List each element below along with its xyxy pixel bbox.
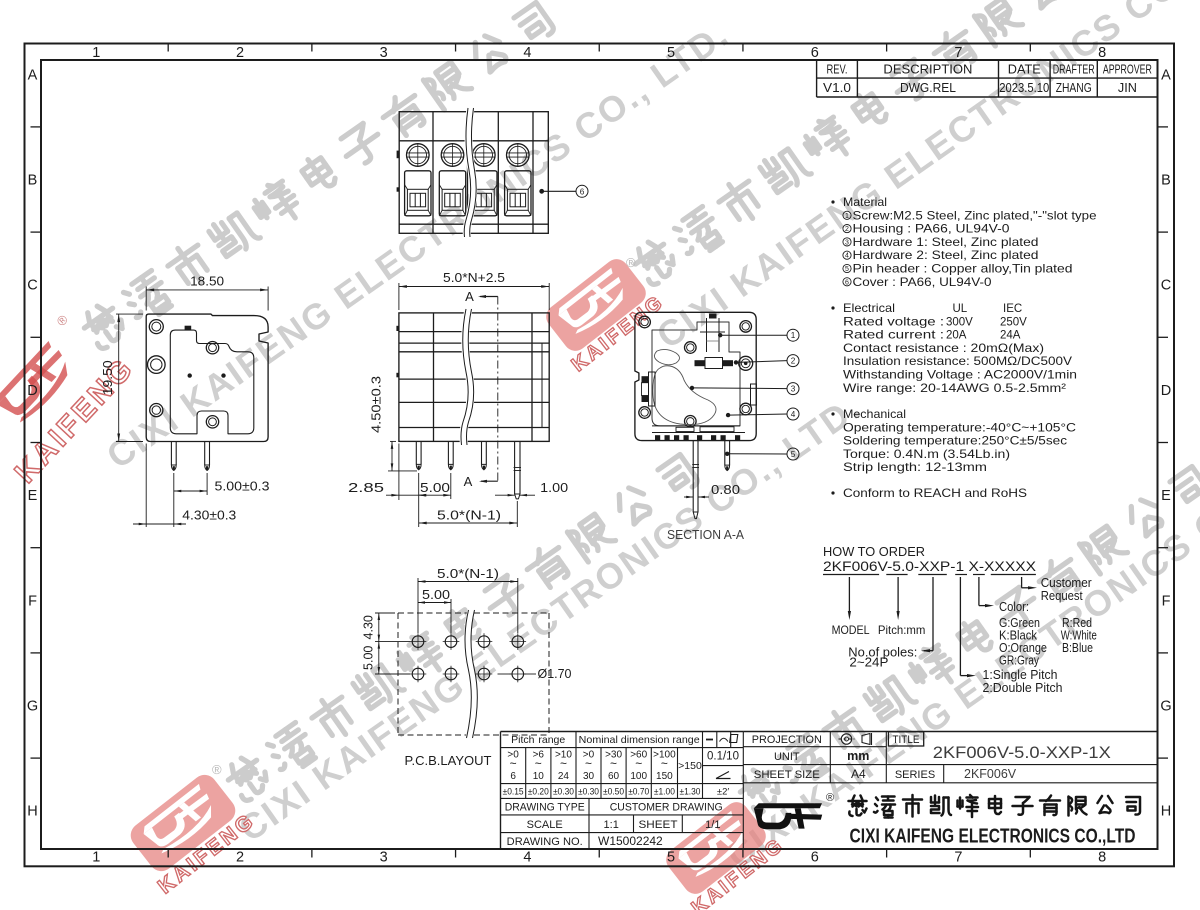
svg-text:~: ~ xyxy=(661,757,668,771)
svg-text:G: G xyxy=(1160,699,1171,715)
svg-text:P.C.B.LAYOUT: P.C.B.LAYOUT xyxy=(405,753,492,768)
svg-text:~: ~ xyxy=(635,757,642,771)
svg-text:2: 2 xyxy=(236,45,244,61)
svg-text:~: ~ xyxy=(610,757,617,771)
svg-text:Torque: 0.4N.m (3.54Lb.in): Torque: 0.4N.m (3.54Lb.in) xyxy=(843,447,1010,461)
svg-text:IEC: IEC xyxy=(1003,303,1022,315)
svg-text:H: H xyxy=(1161,804,1171,820)
svg-text:8: 8 xyxy=(1098,850,1106,866)
svg-text:8: 8 xyxy=(1098,45,1106,61)
svg-text:UNIT: UNIT xyxy=(774,751,800,763)
svg-text:A: A xyxy=(465,289,474,304)
svg-text:Operating temperature:-40°C~+1: Operating temperature:-40°C~+105°C xyxy=(843,420,1076,434)
svg-text:18.50: 18.50 xyxy=(190,275,224,289)
svg-text:±0.50: ±0.50 xyxy=(603,787,624,798)
svg-text:5.0*(N-1): 5.0*(N-1) xyxy=(437,509,501,523)
svg-text:Request: Request xyxy=(1041,589,1083,603)
svg-text:ZHANG: ZHANG xyxy=(1056,80,1092,95)
svg-text:Customer: Customer xyxy=(1041,576,1092,590)
svg-text:DESCRIPTION: DESCRIPTION xyxy=(883,63,972,77)
svg-text:4: 4 xyxy=(791,410,796,419)
svg-text:>150: >150 xyxy=(678,760,702,772)
svg-text:±1.00: ±1.00 xyxy=(654,787,675,798)
svg-text:Strip length: 12-13mm: Strip length: 12-13mm xyxy=(843,460,987,474)
svg-text:±1.30: ±1.30 xyxy=(680,787,701,798)
svg-text:SCALE: SCALE xyxy=(527,819,563,831)
svg-text:5: 5 xyxy=(667,850,675,866)
svg-text:1: 1 xyxy=(845,213,849,220)
svg-text:0.80: 0.80 xyxy=(711,483,740,497)
svg-text:SHEET SIZE: SHEET SIZE xyxy=(754,769,820,781)
svg-text:2KF006V-5.0-XXP-1X: 2KF006V-5.0-XXP-1X xyxy=(933,744,1111,762)
svg-text:Soldering temperature:250°C±5/: Soldering temperature:250°C±5/5sec xyxy=(843,434,1067,448)
svg-text:JIN: JIN xyxy=(1118,80,1137,95)
svg-text:DRAWING NO.: DRAWING NO. xyxy=(507,836,583,848)
svg-text:Color:: Color: xyxy=(999,600,1029,614)
svg-text:Pin header : Copper alloy,Tin: Pin header : Copper alloy,Tin plated xyxy=(853,262,1073,276)
svg-text:2: 2 xyxy=(845,226,849,233)
svg-text:~: ~ xyxy=(510,757,517,771)
svg-text:Housing : PA66, UL94V-0: Housing : PA66, UL94V-0 xyxy=(853,222,1010,236)
svg-text:Conform to REACH and RoHS: Conform to REACH and RoHS xyxy=(843,486,1027,500)
svg-text:2: 2 xyxy=(236,850,244,866)
svg-text:Cover : PA66, UL94V-0: Cover : PA66, UL94V-0 xyxy=(853,275,992,289)
svg-text:E: E xyxy=(28,488,38,504)
svg-text:Hardware 2: Steel, Zinc plated: Hardware 2: Steel, Zinc plated xyxy=(853,248,1039,262)
svg-text:4: 4 xyxy=(523,850,531,866)
svg-text:24A: 24A xyxy=(1000,330,1021,342)
svg-text:5.00: 5.00 xyxy=(362,646,376,670)
svg-text:A: A xyxy=(28,67,38,83)
svg-text:±2′: ±2′ xyxy=(717,787,729,798)
svg-text:2KF006V: 2KF006V xyxy=(964,767,1017,781)
svg-text:5.00±0.3: 5.00±0.3 xyxy=(215,480,270,494)
svg-text:2023.5.10: 2023.5.10 xyxy=(999,80,1049,95)
svg-text:Nominal dimension range: Nominal dimension range xyxy=(579,734,700,746)
svg-text:mm: mm xyxy=(847,749,869,763)
svg-text:1: 1 xyxy=(92,850,100,866)
svg-text:®: ® xyxy=(626,255,636,270)
svg-text:10: 10 xyxy=(533,771,545,782)
svg-text:6: 6 xyxy=(580,187,585,196)
svg-text:Wire range: 20-14AWG 0.5-2.5mm: Wire range: 20-14AWG 0.5-2.5mm² xyxy=(843,381,1066,395)
svg-text:B:Blue: B:Blue xyxy=(1062,641,1093,655)
svg-text:Pitch range: Pitch range xyxy=(511,734,565,746)
svg-text:6: 6 xyxy=(845,279,849,286)
svg-text:4.50±0.3: 4.50±0.3 xyxy=(370,376,384,433)
svg-text:3: 3 xyxy=(380,45,388,61)
svg-text:SERIES: SERIES xyxy=(895,769,935,781)
svg-text:Mechanical: Mechanical xyxy=(843,407,906,421)
svg-text:F: F xyxy=(1162,593,1171,609)
svg-text:~: ~ xyxy=(535,757,542,771)
svg-text:6: 6 xyxy=(510,771,516,782)
svg-text:APPROVER: APPROVER xyxy=(1103,63,1152,77)
svg-text:7: 7 xyxy=(954,45,962,61)
svg-text:1.00: 1.00 xyxy=(540,481,568,495)
svg-text:TITLE: TITLE xyxy=(893,734,920,746)
svg-text:Electrical: Electrical xyxy=(843,301,895,315)
svg-text:E: E xyxy=(1161,488,1171,504)
svg-text:5.0*N+2.5: 5.0*N+2.5 xyxy=(443,271,505,285)
svg-text:Material: Material xyxy=(843,195,887,209)
svg-text:±0.70: ±0.70 xyxy=(628,787,649,798)
svg-text:F: F xyxy=(28,593,37,609)
svg-text:3: 3 xyxy=(845,239,849,246)
svg-text:300V: 300V xyxy=(946,316,973,328)
svg-text:±0.30: ±0.30 xyxy=(553,787,574,798)
svg-text:3: 3 xyxy=(380,850,388,866)
svg-text:5: 5 xyxy=(667,45,675,61)
svg-text:H: H xyxy=(27,804,37,820)
svg-text:2.85: 2.85 xyxy=(348,481,384,495)
svg-text:Pitch:mm: Pitch:mm xyxy=(878,623,926,637)
svg-text:100: 100 xyxy=(630,771,647,782)
svg-text:DWG.REL: DWG.REL xyxy=(900,80,956,95)
svg-text:PROJECTION: PROJECTION xyxy=(752,734,822,746)
svg-text:SECTION A-A: SECTION A-A xyxy=(667,528,745,542)
svg-text:DATE: DATE xyxy=(1008,63,1041,77)
svg-text:5: 5 xyxy=(845,266,849,273)
svg-text:Rated current :: Rated current : xyxy=(843,328,944,342)
svg-text:4: 4 xyxy=(523,45,531,61)
svg-text:24: 24 xyxy=(558,771,570,782)
svg-text:Hardware 1: Steel, Zinc plated: Hardware 1: Steel, Zinc plated xyxy=(853,235,1039,249)
svg-text:GR:Gray: GR:Gray xyxy=(999,654,1040,668)
svg-text:®: ® xyxy=(212,762,222,777)
svg-text:5: 5 xyxy=(791,450,796,459)
svg-text:MODEL: MODEL xyxy=(832,623,870,637)
svg-text:±0.15: ±0.15 xyxy=(503,787,524,798)
svg-text:0.1/10: 0.1/10 xyxy=(707,751,739,763)
svg-text:4.30±0.3: 4.30±0.3 xyxy=(182,509,236,523)
svg-text:7: 7 xyxy=(954,850,962,866)
svg-text:W15002242: W15002242 xyxy=(598,834,663,848)
svg-text:250V: 250V xyxy=(1000,316,1027,328)
svg-text:Insulation resistance: 500MΩ/D: Insulation resistance: 500MΩ/DC500V xyxy=(843,354,1072,368)
svg-text:DRAWING TYPE: DRAWING TYPE xyxy=(505,802,585,814)
svg-text:DRAFTER: DRAFTER xyxy=(1053,63,1095,77)
svg-text:A4: A4 xyxy=(851,767,866,781)
svg-text:60: 60 xyxy=(608,771,620,782)
svg-text:6: 6 xyxy=(811,850,819,866)
svg-text:3: 3 xyxy=(791,385,796,394)
svg-text:~: ~ xyxy=(585,757,592,771)
svg-text:D: D xyxy=(27,383,37,399)
svg-text:1/1: 1/1 xyxy=(705,819,720,831)
svg-text:1: 1 xyxy=(791,331,796,340)
svg-text:UL: UL xyxy=(953,303,968,315)
svg-text:Ø1.70: Ø1.70 xyxy=(538,667,572,681)
svg-text:±0.30: ±0.30 xyxy=(578,787,599,798)
svg-text:~: ~ xyxy=(560,757,567,771)
svg-text:A: A xyxy=(464,474,473,489)
svg-text:®: ® xyxy=(826,792,834,804)
svg-text:Rated voltage :: Rated voltage : xyxy=(843,314,944,328)
svg-text:2: 2 xyxy=(791,357,796,366)
svg-text:5.0*(N-1): 5.0*(N-1) xyxy=(437,567,499,581)
svg-text:2KF006V-5.0-XXP-1 X-XXXXX: 2KF006V-5.0-XXP-1 X-XXXXX xyxy=(823,559,1036,574)
svg-text:1: 1 xyxy=(92,45,100,61)
svg-text:30: 30 xyxy=(583,771,595,782)
svg-text:6: 6 xyxy=(811,45,819,61)
svg-text:Withstanding Voltage : AC2000V: Withstanding Voltage : AC2000V/1min xyxy=(843,368,1077,382)
svg-text:D: D xyxy=(1161,383,1171,399)
svg-text:4: 4 xyxy=(845,253,849,260)
svg-text:B: B xyxy=(1161,173,1171,189)
svg-text:B: B xyxy=(28,173,38,189)
svg-text:A: A xyxy=(1161,67,1171,83)
svg-text:SHEET: SHEET xyxy=(639,819,678,831)
svg-text:C: C xyxy=(27,278,37,294)
svg-text:HOW TO ORDER: HOW TO ORDER xyxy=(823,545,925,559)
svg-text:1:1: 1:1 xyxy=(604,819,619,831)
svg-text:1:Single Pitch: 1:Single Pitch xyxy=(983,668,1058,682)
svg-text:4.30: 4.30 xyxy=(362,615,376,639)
svg-text:REV.: REV. xyxy=(827,63,848,77)
svg-text:2~24P: 2~24P xyxy=(849,656,888,670)
svg-text:19.50: 19.50 xyxy=(101,360,115,395)
svg-text:G: G xyxy=(27,699,38,715)
svg-text:V1.0: V1.0 xyxy=(823,80,851,95)
svg-text:5.00: 5.00 xyxy=(420,481,450,495)
svg-text:Screw:M2.5 Steel, Zinc plated,: Screw:M2.5 Steel, Zinc plated,"-"slot ty… xyxy=(853,208,1097,222)
svg-text:20A: 20A xyxy=(946,330,967,342)
svg-text:±0.20: ±0.20 xyxy=(528,787,549,798)
svg-text:CUSTOMER DRAWING: CUSTOMER DRAWING xyxy=(610,802,723,814)
svg-text:2:Double Pitch: 2:Double Pitch xyxy=(983,681,1063,695)
svg-text:C: C xyxy=(1161,278,1171,294)
svg-text:Contact resistance : 20mΩ(Max): Contact resistance : 20mΩ(Max) xyxy=(843,341,1044,355)
svg-text:5.00: 5.00 xyxy=(422,588,450,602)
svg-text:CIXI KAIFENG ELECTRONICS CO.,L: CIXI KAIFENG ELECTRONICS CO.,LTD xyxy=(850,825,1136,848)
svg-text:150: 150 xyxy=(656,771,673,782)
